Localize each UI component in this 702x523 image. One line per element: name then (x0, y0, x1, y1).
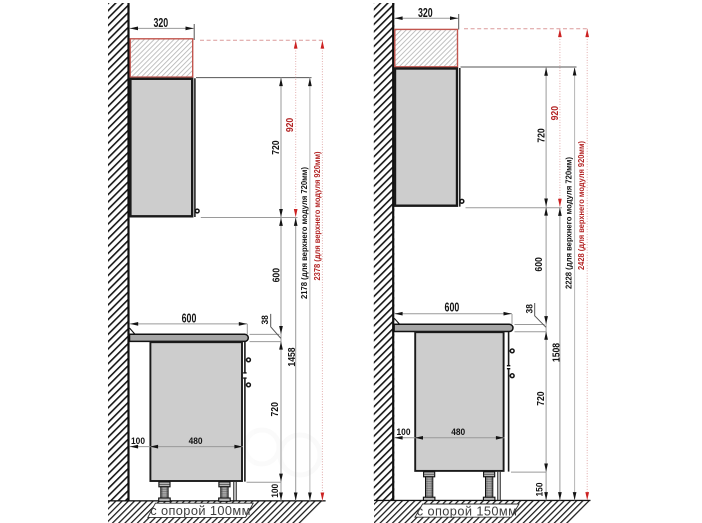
svg-text:920: 920 (285, 118, 296, 132)
svg-text:2228 (для верхнего модуля 720м: 2228 (для верхнего модуля 720мм) (563, 157, 573, 289)
svg-text:38: 38 (524, 304, 534, 313)
svg-text:100: 100 (270, 484, 280, 498)
svg-text:320: 320 (418, 7, 433, 21)
svg-text:600: 600 (271, 268, 282, 282)
svg-text:600: 600 (534, 257, 545, 271)
svg-text:38: 38 (260, 315, 270, 324)
svg-text:720: 720 (536, 128, 547, 142)
svg-text:2178 (для верхнего модуля 720м: 2178 (для верхнего модуля 720мм) (299, 167, 309, 299)
svg-text:480: 480 (189, 436, 203, 446)
svg-text:480: 480 (451, 427, 465, 437)
svg-text:с опорой 150мм: с опорой 150мм (417, 503, 518, 518)
svg-text:720: 720 (536, 391, 547, 405)
svg-text:920: 920 (550, 106, 561, 120)
svg-text:150: 150 (534, 482, 544, 496)
svg-text:720: 720 (271, 140, 282, 154)
svg-text:100: 100 (397, 427, 411, 437)
svg-text:с опорой 100мм: с опорой 100мм (150, 503, 251, 518)
svg-text:720: 720 (270, 402, 281, 416)
svg-text:2428 (для верхнего модуля 920м: 2428 (для верхнего модуля 920мм) (576, 141, 586, 270)
svg-text:100: 100 (131, 436, 145, 446)
svg-text:1508: 1508 (551, 343, 562, 362)
svg-text:1458: 1458 (287, 347, 298, 366)
svg-text:600: 600 (182, 312, 197, 326)
svg-text:600: 600 (445, 301, 460, 315)
svg-text:320: 320 (153, 17, 168, 31)
svg-text:2378 (для верхнего модуля 920м: 2378 (для верхнего модуля 920мм) (312, 151, 322, 280)
